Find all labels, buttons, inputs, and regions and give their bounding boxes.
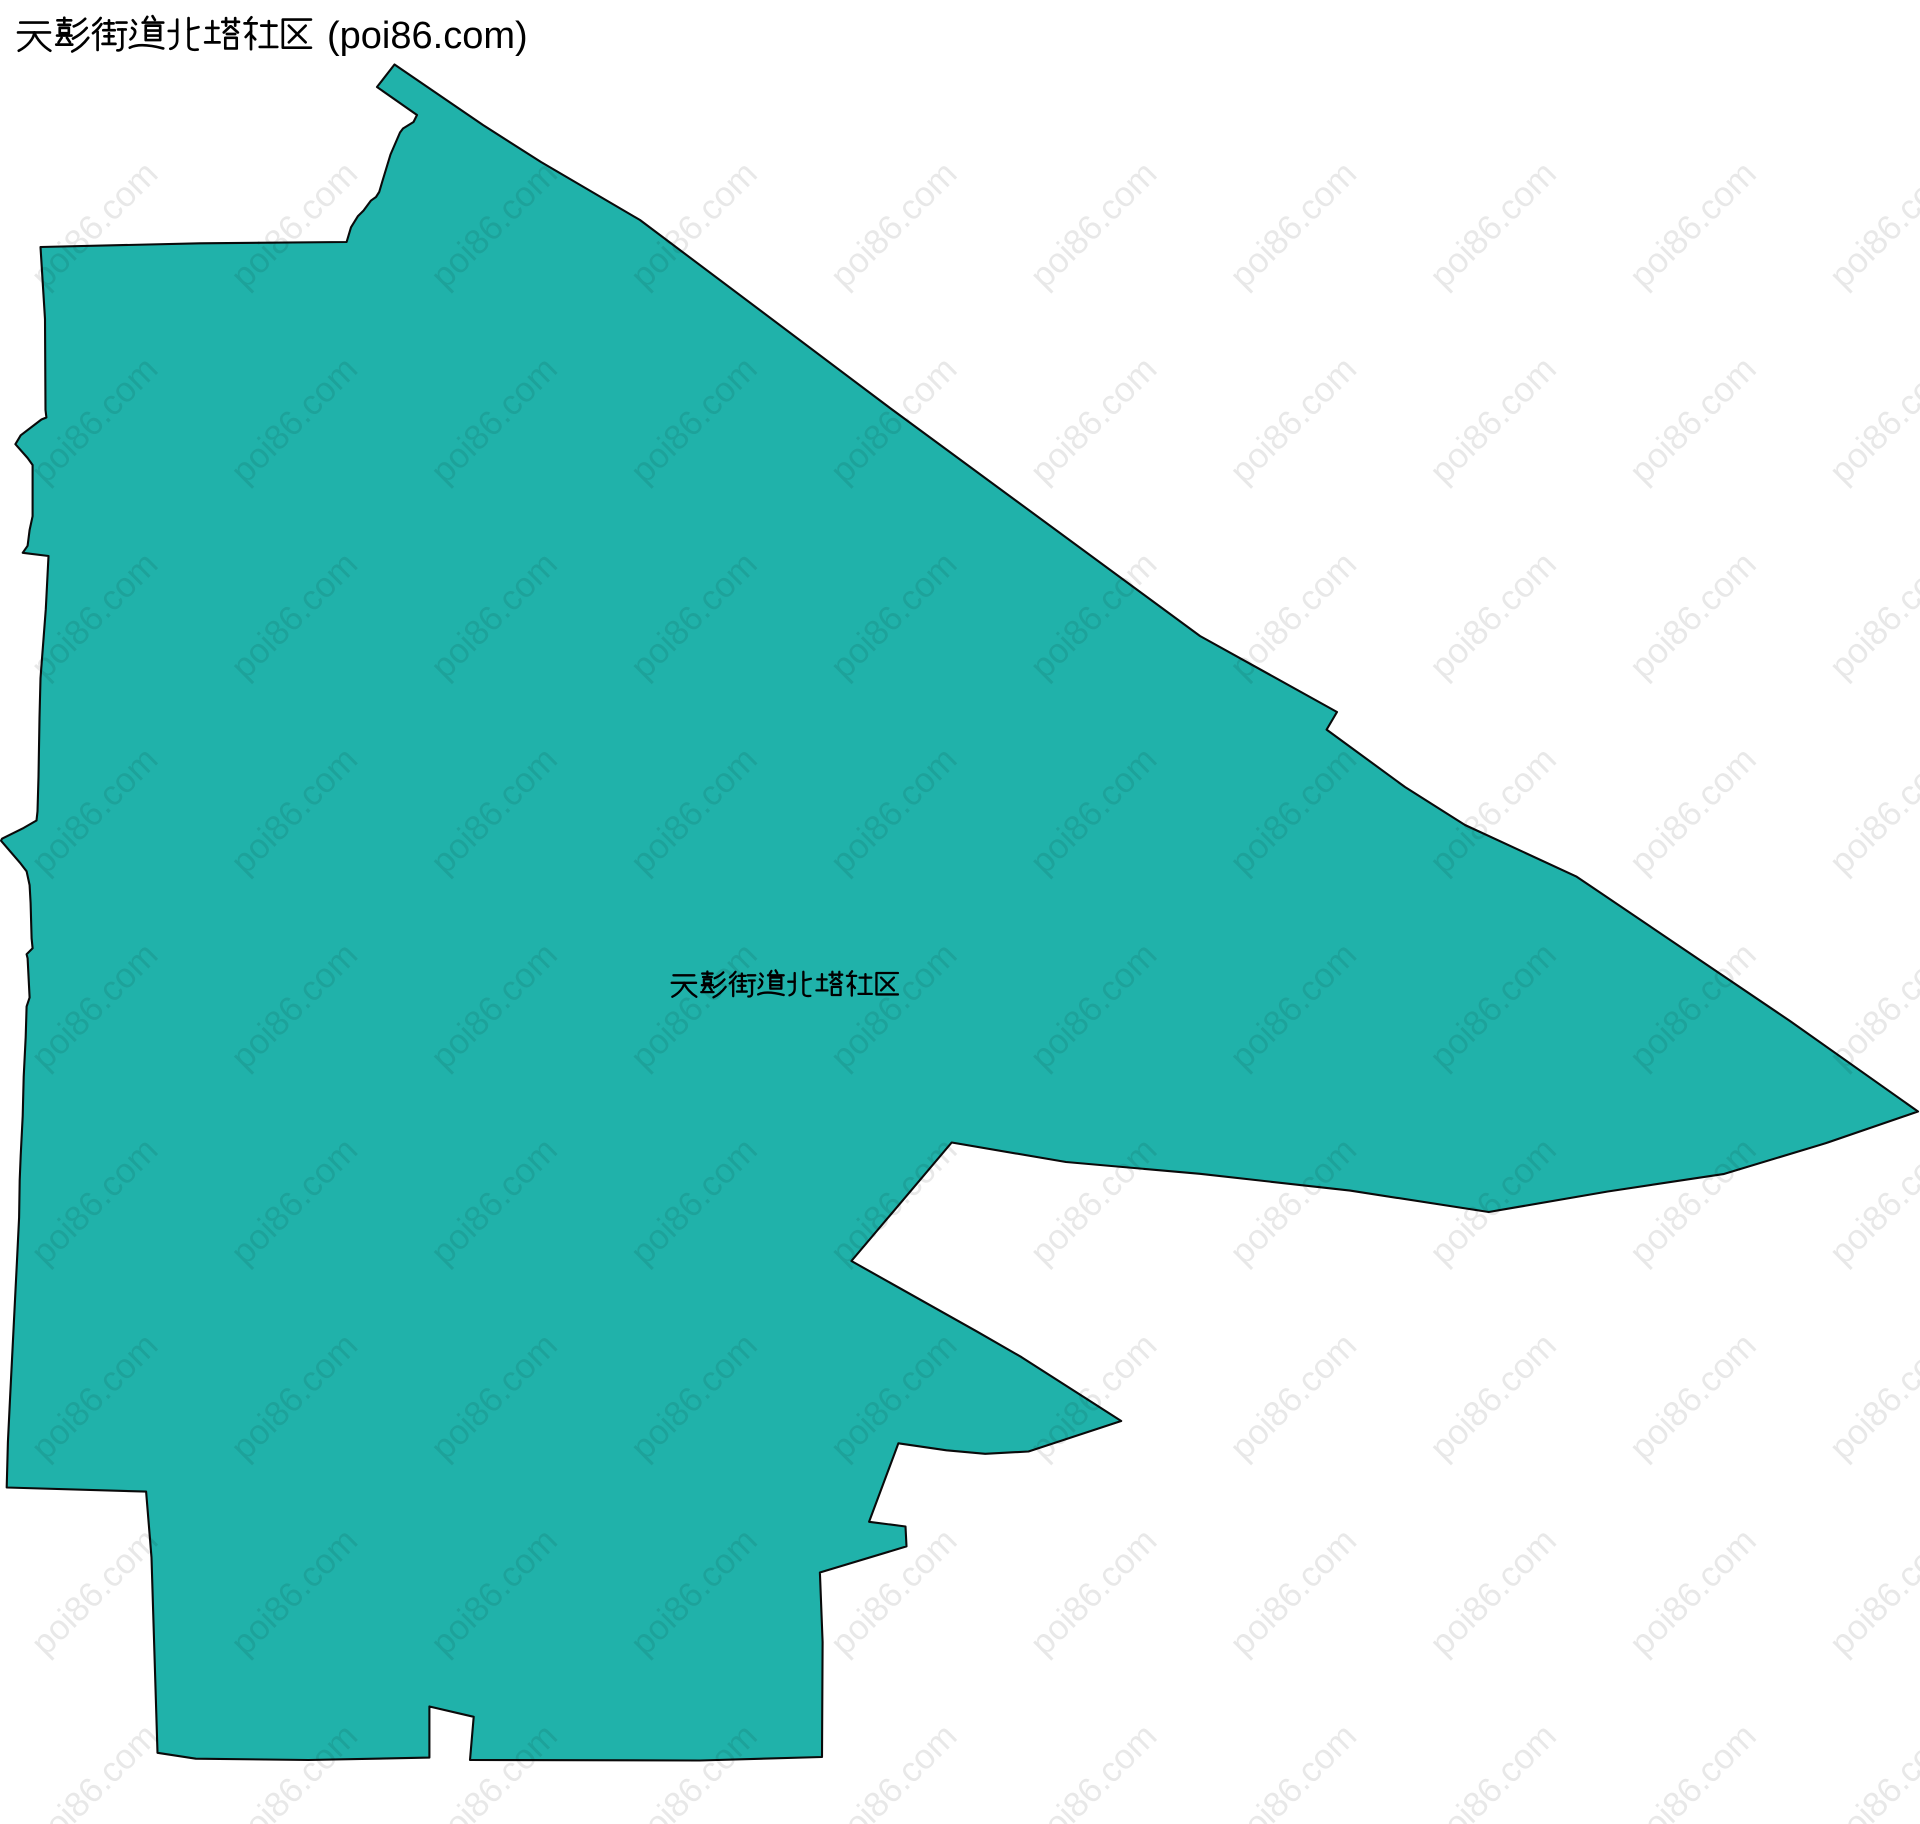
- svg-text:(poi86.com): (poi86.com): [327, 15, 528, 57]
